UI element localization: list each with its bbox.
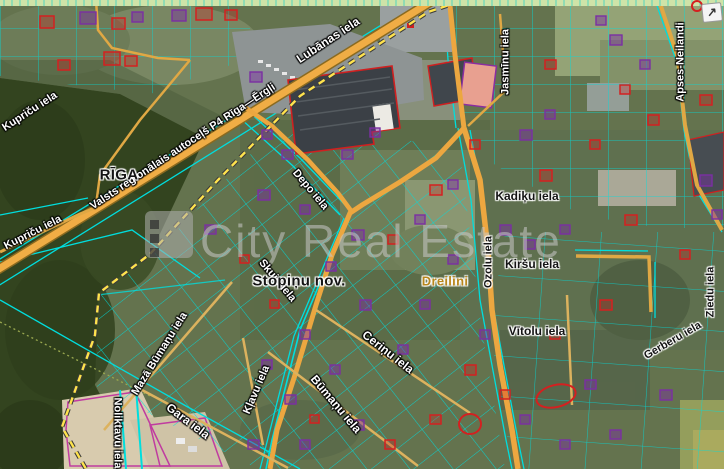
place-label-dreilini: Dreilini	[422, 275, 468, 288]
place-label-stopinu-nov: Stopiņu nov.	[252, 274, 345, 289]
field-strip	[0, 0, 724, 6]
street-label-noliktavu-iela: Noliktavu iela	[112, 398, 123, 469]
street-label-vitolu-iela: Vītolu iela	[509, 325, 566, 337]
satellite-map-canvas[interactable]: City Real Estate ↗ Kupriču iela Kupriču …	[0, 0, 724, 469]
street-label-jasminu-iela: Jasmīnu iela	[501, 29, 512, 95]
street-label-kadiku-iela: Kadiķu iela	[495, 190, 558, 202]
watermark-text: City Real Estate	[200, 214, 720, 266]
place-label-riga: RĪGA	[100, 168, 139, 183]
street-label-ziedu-iela: Ziedu iela	[706, 267, 717, 318]
street-label-ozolu-iela: Ozolu iela	[484, 236, 495, 288]
expand-arrow-icon[interactable]: ↗	[701, 2, 723, 23]
street-label-kirsu-iela: Kiršu iela	[505, 258, 559, 270]
street-label-apses-neilandi: Apses-Neilandi	[676, 22, 687, 101]
watermark-logo	[145, 211, 193, 258]
